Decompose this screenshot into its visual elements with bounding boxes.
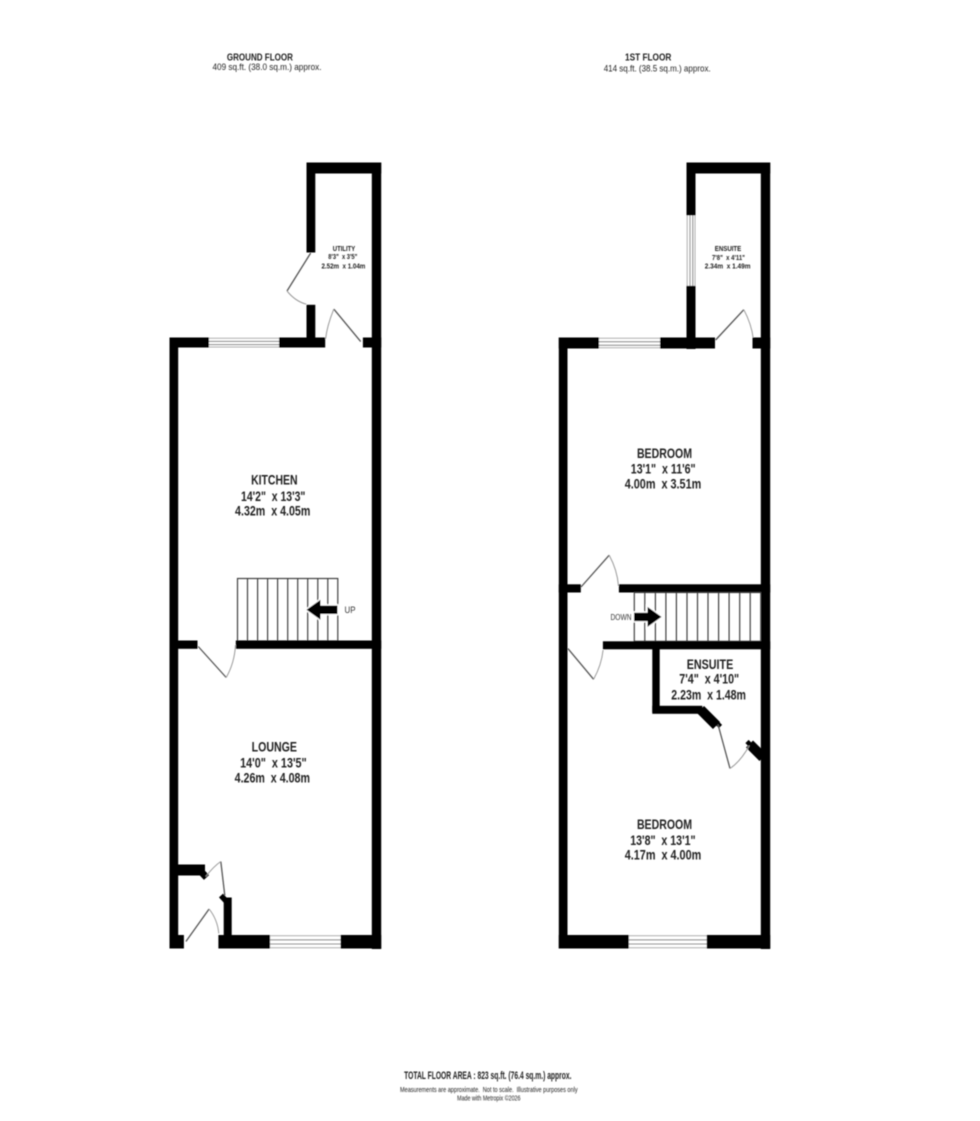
svg-text:4.26m x 4.08m: 4.26m x 4.08m: [235, 770, 310, 785]
svg-text:Measurements are approximate.: Measurements are approximate. Not to sca…: [400, 1085, 578, 1094]
svg-text:TOTAL FLOOR AREA : 823 sq.ft.: TOTAL FLOOR AREA : 823 sq.ft. (76.4 sq.m…: [404, 1070, 571, 1082]
svg-text:4.00m x 3.51m: 4.00m x 3.51m: [625, 477, 702, 492]
svg-text:409 sq.ft. (38.0 sq.m.) approx: 409 sq.ft. (38.0 sq.m.) approx.: [213, 61, 322, 72]
svg-text:ENSUITE: ENSUITE: [715, 244, 742, 253]
svg-text:ENSUITE: ENSUITE: [687, 657, 734, 672]
svg-text:7'4" x 4'10": 7'4" x 4'10": [679, 672, 739, 687]
svg-text:KITCHEN: KITCHEN: [251, 473, 297, 488]
svg-text:BEDROOM: BEDROOM: [637, 817, 692, 832]
svg-text:BEDROOM: BEDROOM: [637, 446, 692, 461]
svg-text:DOWN: DOWN: [611, 612, 632, 622]
svg-text:UP: UP: [345, 605, 356, 615]
svg-text:4.32m x 4.05m: 4.32m x 4.05m: [235, 504, 310, 519]
svg-text:LOUNGE: LOUNGE: [252, 740, 297, 755]
svg-text:13'1" x 11'6": 13'1" x 11'6": [631, 461, 696, 476]
svg-text:14'2" x 13'3": 14'2" x 13'3": [241, 489, 305, 504]
svg-text:2.23m x 1.48m: 2.23m x 1.48m: [671, 688, 746, 703]
svg-text:8'3" x 3'5": 8'3" x 3'5": [328, 252, 357, 261]
svg-text:13'8" x 13'1": 13'8" x 13'1": [630, 833, 695, 848]
svg-text:4.17m x 4.00m: 4.17m x 4.00m: [625, 848, 702, 863]
svg-text:14'0" x 13'5": 14'0" x 13'5": [240, 755, 307, 770]
svg-text:2.52m x 1.04m: 2.52m x 1.04m: [321, 261, 365, 270]
svg-text:Made with Metropix ©2026: Made with Metropix ©2026: [457, 1094, 520, 1103]
svg-text:414 sq.ft. (38.5 sq.m.) approx: 414 sq.ft. (38.5 sq.m.) approx.: [604, 63, 711, 74]
svg-text:2.34m x 1.49m: 2.34m x 1.49m: [705, 261, 751, 270]
